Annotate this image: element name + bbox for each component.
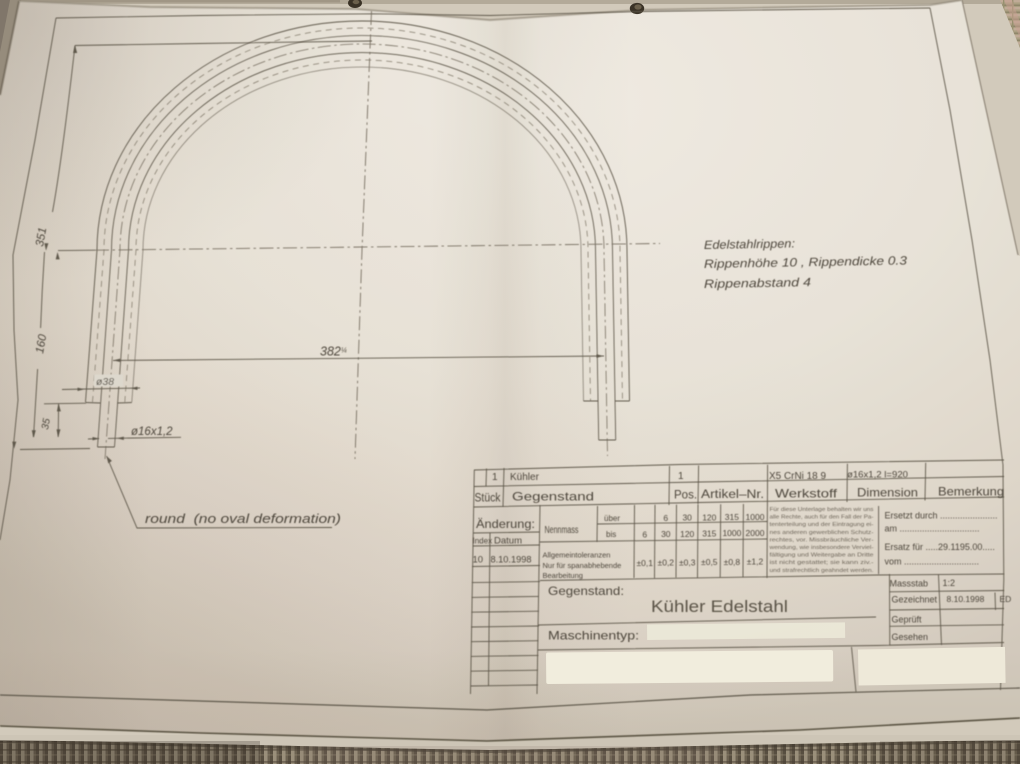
svg-text:6: 6 xyxy=(642,529,647,539)
svg-text:und strafrechtlich geahndet we: und strafrechtlich geahndet werden. xyxy=(770,568,874,574)
svg-text:30: 30 xyxy=(682,513,692,523)
svg-text:1000: 1000 xyxy=(746,512,765,522)
svg-text:ø16x1,2 l=920: ø16x1,2 l=920 xyxy=(847,470,908,481)
svg-text:Für diese Unterlage behalten w: Für diese Unterlage behalten wir uns xyxy=(770,507,875,513)
svg-text:315: 315 xyxy=(725,512,739,522)
svg-text:Kühler Edelstahl: Kühler Edelstahl xyxy=(651,597,788,616)
svg-text:Kühler: Kühler xyxy=(510,472,540,483)
svg-text:±0,5: ±0,5 xyxy=(701,557,718,567)
svg-text:Index: Index xyxy=(473,537,493,546)
svg-text:120: 120 xyxy=(680,529,694,539)
svg-text:Gezeichnet: Gezeichnet xyxy=(892,595,938,605)
svg-text:Pos.: Pos. xyxy=(674,490,697,502)
svg-text:über: über xyxy=(604,514,620,523)
svg-text:Rippenabstand 4: Rippenabstand 4 xyxy=(704,275,812,291)
svg-text:vom ..........................: vom .............................. xyxy=(885,557,980,567)
svg-text:1000: 1000 xyxy=(722,528,741,538)
svg-text:Stück: Stück xyxy=(475,493,501,505)
svg-text:Ersatz für .....29.1195.00....: Ersatz für .....29.1195.00..... xyxy=(885,542,995,552)
svg-text:ø16x1,2: ø16x1,2 xyxy=(131,426,173,438)
svg-text:Bearbeitung: Bearbeitung xyxy=(543,571,583,580)
svg-text:±1,2: ±1,2 xyxy=(747,557,764,567)
svg-text:1:2: 1:2 xyxy=(943,578,956,588)
svg-text:Artikel–Nr.: Artikel–Nr. xyxy=(701,489,764,501)
svg-text:tenterteilung und der Eintragu: tenterteilung und der Eintragung ei- xyxy=(770,522,874,528)
svg-text:315: 315 xyxy=(702,529,716,539)
svg-text:±0,3: ±0,3 xyxy=(679,557,696,567)
svg-text:Maschinentyp:: Maschinentyp: xyxy=(548,629,639,643)
svg-text:Datum: Datum xyxy=(494,536,522,547)
svg-text:Werkstoff: Werkstoff xyxy=(775,487,838,501)
svg-text:Massstab: Massstab xyxy=(890,579,929,589)
svg-text:Edelstahlrippen:: Edelstahlrippen: xyxy=(704,236,795,252)
svg-text:Gesehen: Gesehen xyxy=(892,632,929,642)
svg-text:alle Rechte, auch für den Fall: alle Rechte, auch für den Fall der Pa- xyxy=(770,515,874,521)
svg-text:2000: 2000 xyxy=(746,528,765,538)
svg-text:nes anderen gewerblichen Schut: nes anderen gewerblichen Schutz- xyxy=(770,530,874,536)
svg-text:8.10.1998: 8.10.1998 xyxy=(491,555,532,565)
svg-text:±0,1: ±0,1 xyxy=(636,558,653,568)
svg-text:Änderung:: Änderung: xyxy=(476,517,535,531)
svg-text:1: 1 xyxy=(492,472,498,483)
svg-text:am ...........................: am ................................ xyxy=(885,524,980,534)
svg-text:Nennmass: Nennmass xyxy=(545,525,579,536)
svg-text:wendung, wie insbesondere Verv: wendung, wie insbesondere Verviel- xyxy=(770,545,874,551)
svg-text:Bemerkung: Bemerkung xyxy=(938,485,1004,499)
svg-text:1: 1 xyxy=(678,471,684,482)
svg-text:bis: bis xyxy=(606,530,616,539)
svg-text:8.10.1998: 8.10.1998 xyxy=(947,594,985,604)
svg-text:120: 120 xyxy=(702,512,716,522)
svg-text:fältigung und Weitergabe an Dr: fältigung und Weitergabe an Dritte xyxy=(770,553,874,559)
svg-text:6: 6 xyxy=(663,513,668,523)
svg-text:ist nicht gestattet; sie kann: ist nicht gestattet; sie kann ziv.- xyxy=(770,560,874,566)
svg-text:10: 10 xyxy=(473,555,484,566)
svg-text:Ersetzt durch ................: Ersetzt durch ....................... xyxy=(885,511,998,521)
svg-text:Allgemeintoleranzen: Allgemeintoleranzen xyxy=(543,551,611,560)
svg-text:Nur für spanabhebende: Nur für spanabhebende xyxy=(543,561,622,570)
svg-text:Geprüft: Geprüft xyxy=(892,615,923,625)
svg-text:±0,2: ±0,2 xyxy=(658,558,675,568)
svg-text:Dimension: Dimension xyxy=(857,486,918,500)
svg-text:Gegenstand: Gegenstand xyxy=(512,490,594,504)
svg-text:X5 CrNi 18 9: X5 CrNi 18 9 xyxy=(769,471,826,482)
svg-text:round (no oval deformation): round (no oval deformation) xyxy=(145,512,341,526)
svg-text:Gegenstand:: Gegenstand: xyxy=(548,584,624,598)
svg-text:30: 30 xyxy=(661,529,671,539)
svg-text:ED: ED xyxy=(1000,594,1012,604)
svg-text:±0,8: ±0,8 xyxy=(724,557,741,567)
svg-text:rechtes, vor. Missbräuchliche: rechtes, vor. Missbräuchliche Ver- xyxy=(770,537,874,543)
svg-text:ø38: ø38 xyxy=(96,376,114,388)
